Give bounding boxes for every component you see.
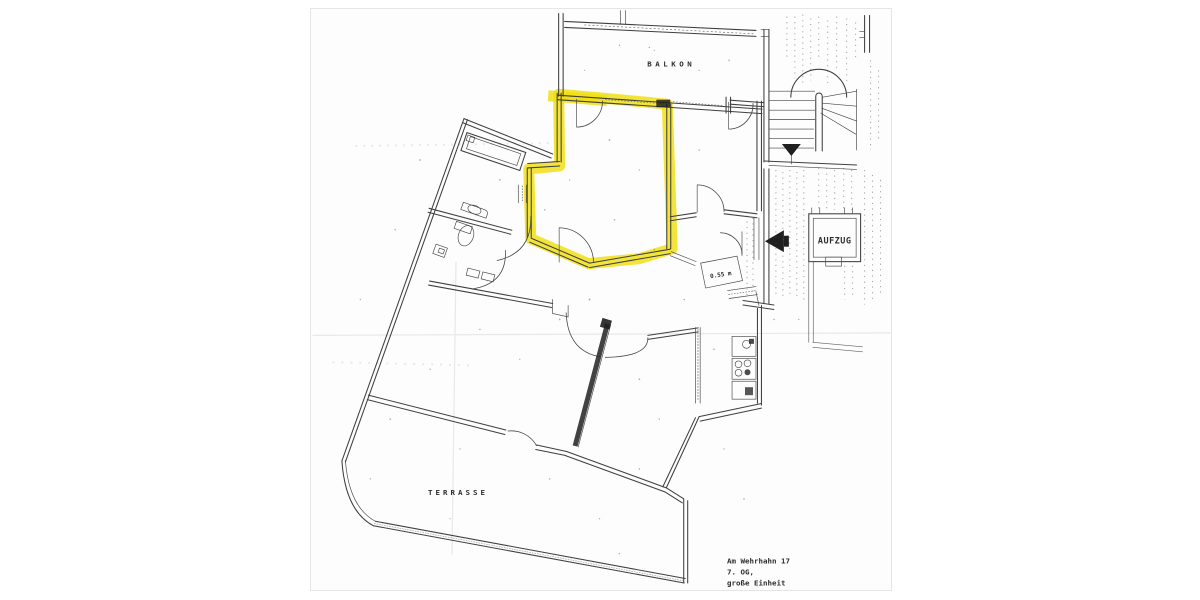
- corridor-and-right-room: [670, 101, 774, 405]
- highlighted-unit-outline: [529, 94, 673, 263]
- scan-speckles: [360, 45, 800, 555]
- terrace-door-arc: [508, 431, 537, 446]
- floor-plan-drawing: BALKON: [311, 9, 891, 590]
- corridor-door-arc: [720, 233, 742, 255]
- entrance-arrow-icon: [765, 230, 784, 252]
- floorplan-scan-page: BALKON: [310, 8, 892, 591]
- room-door-arc: [697, 185, 724, 212]
- living-area: [536, 312, 762, 583]
- balcony-structure: [558, 10, 764, 129]
- screenshot-canvas: BALKON: [0, 0, 1200, 600]
- address-line: Am Wehrhahn 17: [727, 557, 790, 566]
- wc-door-arc: [472, 250, 505, 289]
- dark-partition: [575, 324, 607, 446]
- toilet: [455, 223, 476, 248]
- stair-direction-arrow-icon: [782, 144, 801, 156]
- floor-line: 7. OG,: [727, 568, 754, 577]
- title-block: Am Wehrhahn 17 7. OG, große Einheit: [727, 557, 790, 588]
- french-door-arc-right: [605, 337, 648, 357]
- terrace: [342, 395, 685, 583]
- unit-line: große Einheit: [727, 579, 785, 588]
- kitchen-stove: [732, 358, 756, 379]
- elevator: [765, 208, 863, 352]
- washbasin: [461, 202, 488, 218]
- terrace-label: TERRASSE: [428, 488, 488, 497]
- balcony-label: BALKON: [647, 59, 695, 68]
- kitchen-fixtures: [732, 336, 756, 399]
- door-width-label: 0.55 m: [710, 270, 733, 280]
- elevator-label: AUFZUG: [818, 236, 852, 246]
- bathtub: [461, 133, 526, 171]
- door-width-annotation: 0.55 m: [701, 256, 758, 298]
- stairwell: [761, 15, 870, 169]
